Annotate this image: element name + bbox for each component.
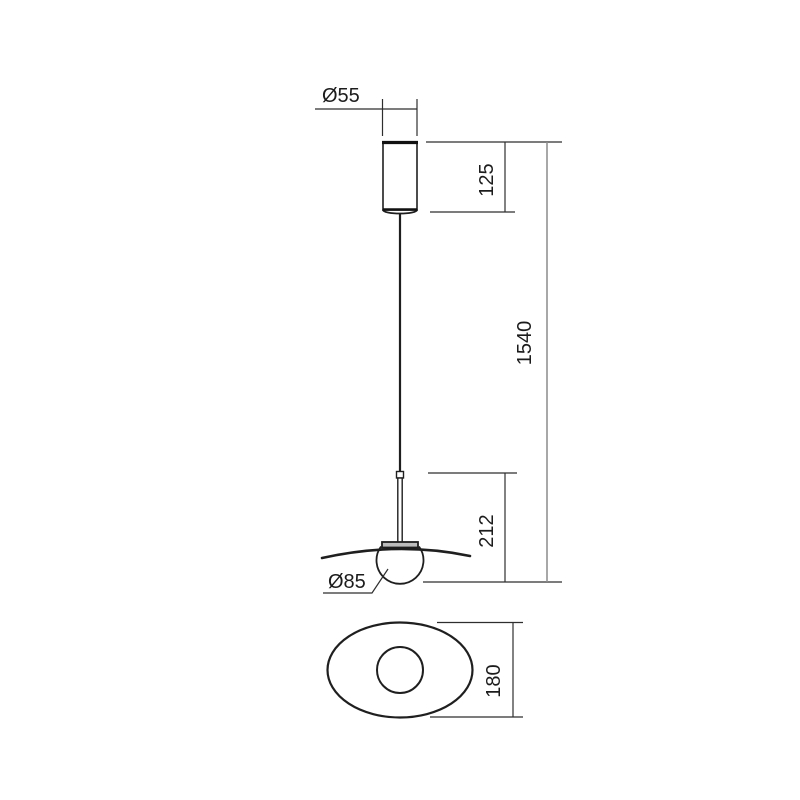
dimension-shade-depth: 180 xyxy=(430,623,523,718)
dim-55-label: Ø55 xyxy=(322,85,360,107)
dim-180-label: 180 xyxy=(483,664,505,697)
dimension-sphere-diameter: Ø85 xyxy=(323,569,388,593)
technical-drawing-canvas: Ø55 Ø85 xyxy=(0,0,800,800)
bottom-view: 180 xyxy=(328,623,524,718)
dimension-total-height: 1540 xyxy=(514,142,547,582)
front-view: Ø55 Ø85 xyxy=(315,85,562,593)
dim-85-label: Ø85 xyxy=(328,571,366,593)
canopy-cylinder xyxy=(382,142,418,214)
dimension-canopy-height: 125 xyxy=(476,142,505,212)
dimension-head-height: 212 xyxy=(476,473,505,582)
shade-outline-ellipse xyxy=(328,623,473,718)
dimension-canopy-diameter: Ø55 xyxy=(315,85,417,136)
sphere-outline-circle xyxy=(377,647,423,693)
dim-1540-label: 1540 xyxy=(514,321,536,366)
sphere-holder-plate xyxy=(382,542,418,548)
cable-grip-cap xyxy=(397,472,404,479)
dim-125-label: 125 xyxy=(476,163,498,196)
sphere-diffuser xyxy=(376,547,423,584)
dim-212-label: 212 xyxy=(476,514,498,547)
pendant-lamp-drawing: Ø55 Ø85 xyxy=(0,0,800,800)
stem-rod xyxy=(398,478,402,543)
canopy-body xyxy=(383,142,417,210)
shade-profile-curve xyxy=(322,549,470,558)
